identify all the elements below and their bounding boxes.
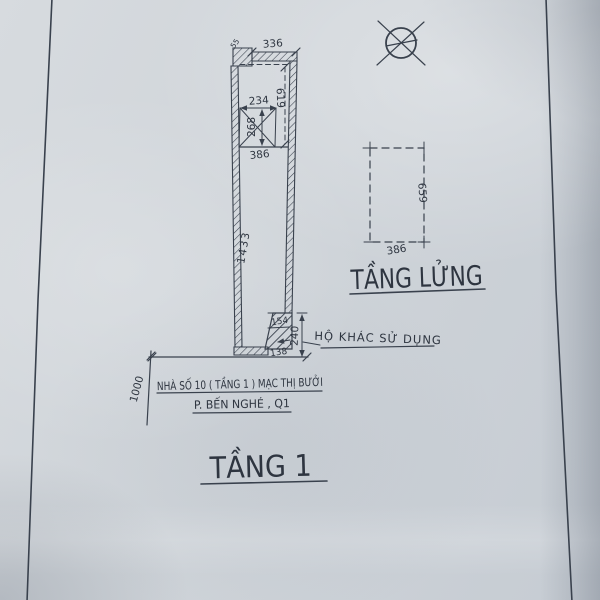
wall-front-notch xyxy=(233,48,252,66)
page-border-left xyxy=(27,0,52,600)
floor1-label: TẦNG 1 xyxy=(208,445,312,487)
other-household-note: HỘ KHÁC SỬ DỤNG xyxy=(314,327,442,347)
north-symbol-icon xyxy=(377,21,425,65)
wall-front xyxy=(252,52,297,61)
page-border-right xyxy=(546,0,572,600)
wall-rear xyxy=(234,347,268,355)
scanned-plan-photo: 336 55 619 234 268 386 1433 154 138 240 xyxy=(0,0,600,600)
floor1-plan: 336 55 619 234 268 386 1433 154 138 240 xyxy=(128,37,442,486)
mezzanine-outline xyxy=(370,148,424,242)
address-underline2 xyxy=(193,412,291,413)
address-line2: P. BẾN NGHÉ , Q1 xyxy=(194,394,290,412)
dim-inner-width: 386 xyxy=(249,148,271,162)
dim-stair-depth: 268 xyxy=(246,117,258,137)
dim-rear-depth: 240 xyxy=(289,326,302,346)
dim-stair-width: 234 xyxy=(248,94,269,107)
address-line1: NHÀ SỐ 10 ( TẦNG 1 ) MẠC THỊ BƯỞI xyxy=(157,373,323,393)
dim-mezzanine-width: 386 xyxy=(386,242,408,257)
floor-plan-drawing: 336 55 619 234 268 386 1433 154 138 240 xyxy=(0,0,600,600)
dim-front-offset: 1000 xyxy=(128,375,147,404)
dim-front-width: 336 xyxy=(262,37,283,50)
note-underline xyxy=(321,346,434,348)
dim-upper-room-depth: 619 xyxy=(274,88,287,108)
dim-line-front-offset xyxy=(147,351,151,425)
dim-mezzanine-depth: 659 xyxy=(415,182,428,203)
mezzanine-plan: 659 386 TẦNG LỬNG xyxy=(349,142,485,296)
